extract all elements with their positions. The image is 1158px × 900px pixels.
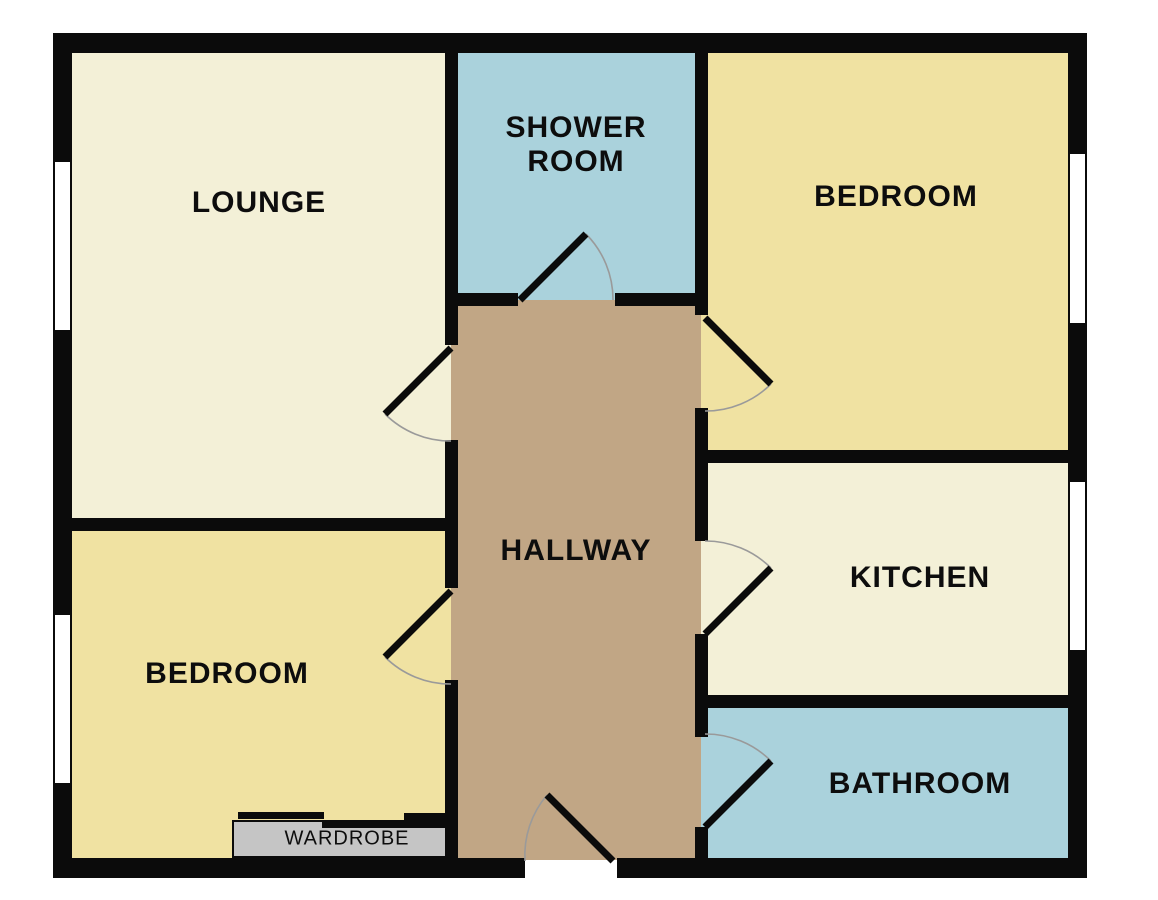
wardrobe-sliding-door-bar-right [404, 813, 447, 828]
wall-bedroom-hallway-lower [445, 680, 458, 858]
wall-hallway-kitchen-lower [695, 634, 708, 737]
wall-outer-bottom-right-of-entry [617, 858, 1087, 878]
wall-lounge-bedroom-bl [53, 518, 458, 531]
window-kitchen [1068, 480, 1087, 652]
room-label-kitchen: KITCHEN [850, 561, 990, 595]
room-kitchen: KITCHEN [701, 456, 1087, 701]
wall-outer-top [53, 33, 1087, 53]
room-bathroom: BATHROOM [701, 701, 1087, 868]
wall-lounge-hallway-middle [445, 440, 458, 588]
wall-kitchen-bathroom [695, 695, 1087, 708]
wardrobe-label: WARDROBE [284, 828, 409, 851]
wall-hallway-kitchen-upper [695, 408, 708, 541]
floor-plan-canvas: LOUNGE SHOWER ROOM BEDROOM HALLWAY KITCH… [0, 0, 1158, 900]
wall-hallway-bathroom-lower [695, 827, 708, 858]
window-bedroom-bottom-left [53, 613, 72, 785]
room-lounge: LOUNGE [53, 33, 451, 524]
room-hallway: HALLWAY [451, 300, 701, 860]
room-shower-room: SHOWER ROOM [451, 33, 701, 300]
window-bedroom-top-right [1068, 152, 1087, 325]
window-lounge [53, 160, 72, 332]
room-label-bedroom-bottom-left: BEDROOM [145, 657, 309, 691]
room-label-shower-room: SHOWER ROOM [481, 111, 671, 179]
wall-shower-hallway-right [615, 293, 708, 306]
wardrobe-sliding-door-bar-middle [322, 821, 410, 828]
wall-bedroom-tr-kitchen [695, 450, 1087, 463]
wardrobe-sliding-door-bar-left [238, 812, 324, 819]
room-label-hallway: HALLWAY [501, 534, 652, 568]
room-label-bathroom: BATHROOM [829, 767, 1011, 801]
room-label-bedroom-top-right: BEDROOM [814, 180, 978, 214]
wall-outer-bottom-left-of-entry [53, 858, 525, 878]
room-bedroom-top-right: BEDROOM [701, 33, 1087, 456]
wall-shower-hallway-left [445, 293, 518, 306]
room-label-lounge: LOUNGE [192, 186, 326, 220]
wall-hallway-bedroom-tr-upper [695, 53, 708, 315]
